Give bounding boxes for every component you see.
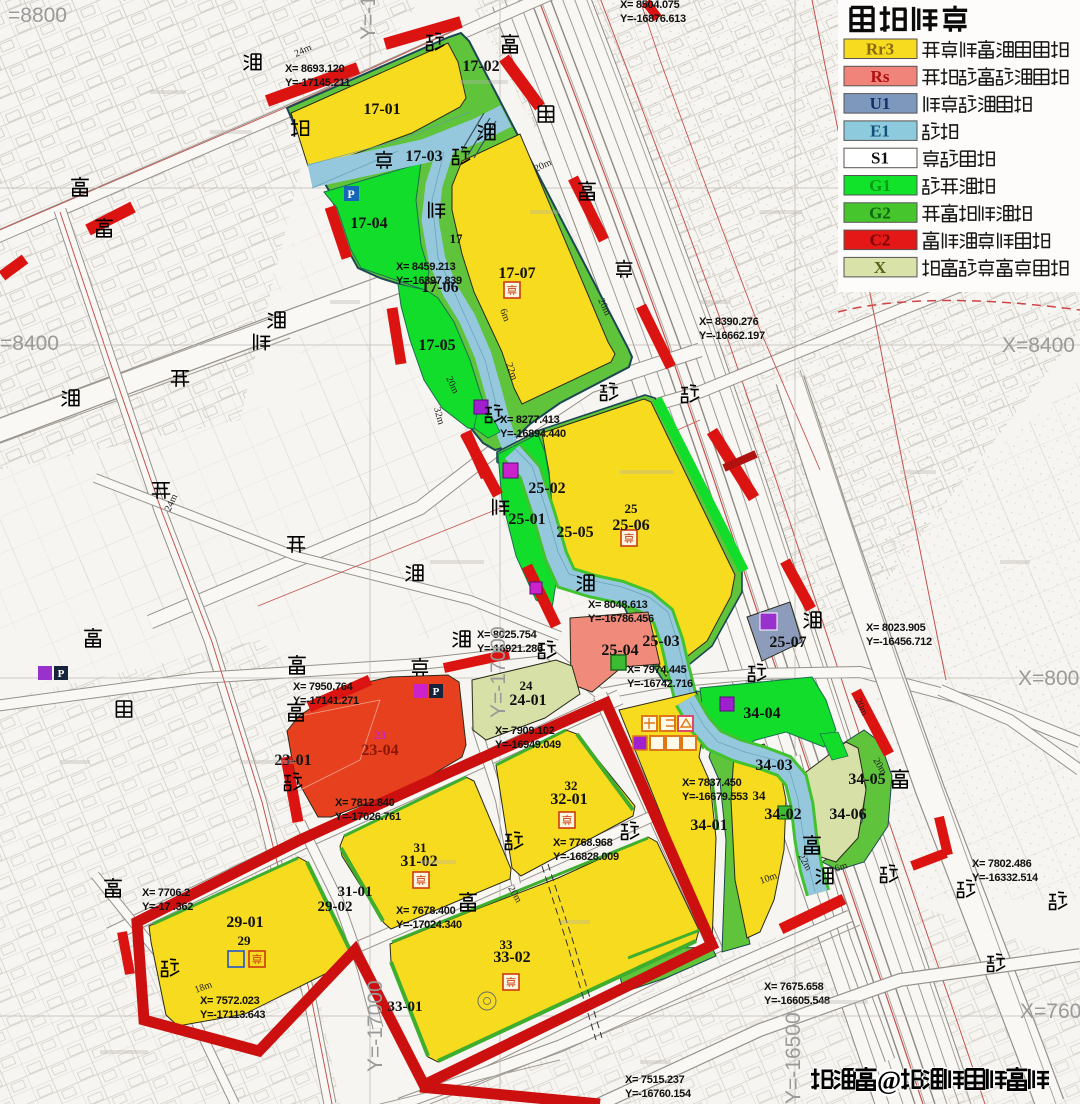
svg-text:X= 7768.968: X= 7768.968 bbox=[553, 837, 613, 849]
svg-text:G2: G2 bbox=[869, 203, 891, 222]
svg-text:G1: G1 bbox=[869, 176, 891, 195]
svg-text:Y=-17000: Y=-17000 bbox=[364, 980, 387, 1072]
svg-text:25-06: 25-06 bbox=[612, 517, 649, 534]
svg-text:X=7600: X=7600 bbox=[1020, 1000, 1080, 1023]
svg-text:24-01: 24-01 bbox=[509, 692, 546, 709]
svg-text:34-02: 34-02 bbox=[764, 806, 801, 823]
svg-text:17-01: 17-01 bbox=[363, 101, 400, 118]
svg-text:17-05: 17-05 bbox=[418, 337, 455, 354]
svg-text:Y=-16760.154: Y=-16760.154 bbox=[625, 1088, 692, 1100]
svg-text:X=8400: X=8400 bbox=[1002, 334, 1075, 357]
svg-text:X= 7802.486: X= 7802.486 bbox=[972, 858, 1032, 870]
svg-text:Y=-16662.197: Y=-16662.197 bbox=[699, 330, 765, 342]
svg-text:X: X bbox=[874, 258, 887, 277]
svg-text:X= 8504.075: X= 8504.075 bbox=[620, 0, 680, 11]
svg-text:X= 7675.658: X= 7675.658 bbox=[764, 981, 824, 993]
svg-text:Y=-17113.643: Y=-17113.643 bbox=[200, 1009, 265, 1021]
svg-text:X= 7909.102: X= 7909.102 bbox=[495, 725, 555, 737]
svg-text:=8400: =8400 bbox=[0, 332, 59, 355]
svg-text:29-01: 29-01 bbox=[226, 914, 263, 931]
svg-text:25-04: 25-04 bbox=[601, 642, 638, 659]
svg-text:34-03: 34-03 bbox=[755, 757, 792, 774]
svg-text:C2: C2 bbox=[870, 231, 891, 250]
svg-text:29: 29 bbox=[238, 933, 252, 948]
svg-text:Rr3: Rr3 bbox=[866, 40, 894, 59]
svg-text:X= 7706.2: X= 7706.2 bbox=[142, 887, 190, 899]
svg-text:17-03: 17-03 bbox=[405, 148, 442, 165]
svg-text:X= 7678.400: X= 7678.400 bbox=[396, 905, 456, 917]
svg-text:X= 7812.840: X= 7812.840 bbox=[335, 797, 395, 809]
svg-text:Y=-16828.009: Y=-16828.009 bbox=[553, 851, 619, 863]
svg-text:X=8000: X=8000 bbox=[1018, 667, 1080, 690]
svg-text:32-01: 32-01 bbox=[550, 791, 587, 808]
svg-text:=8800: =8800 bbox=[8, 4, 67, 27]
svg-text:Y=-16876.613: Y=-16876.613 bbox=[620, 13, 686, 25]
svg-text:23: 23 bbox=[374, 728, 386, 742]
svg-text:U1: U1 bbox=[870, 94, 891, 113]
svg-text:P: P bbox=[347, 187, 354, 201]
svg-text:Rs: Rs bbox=[871, 67, 890, 86]
svg-text:Y=-16949.049: Y=-16949.049 bbox=[495, 739, 561, 751]
svg-text:25-03: 25-03 bbox=[642, 633, 679, 650]
svg-text:34-01: 34-01 bbox=[690, 817, 727, 834]
svg-text:17: 17 bbox=[450, 231, 464, 246]
svg-text:P: P bbox=[433, 686, 440, 698]
svg-text:33-02: 33-02 bbox=[493, 949, 530, 966]
svg-text:Y=-16786.456: Y=-16786.456 bbox=[588, 613, 654, 625]
svg-text:S1: S1 bbox=[871, 149, 889, 168]
svg-text:X= 8459.213: X= 8459.213 bbox=[396, 261, 456, 273]
svg-text:24: 24 bbox=[520, 678, 534, 693]
svg-text:P: P bbox=[58, 668, 65, 680]
svg-text:Y=-17000: Y=-17000 bbox=[357, 0, 380, 40]
svg-text:Y=-16897.839: Y=-16897.839 bbox=[396, 275, 462, 287]
svg-text:23-04: 23-04 bbox=[361, 742, 398, 759]
svg-text:X= 7572.023: X= 7572.023 bbox=[200, 995, 260, 1007]
svg-text:X= 8693.120: X= 8693.120 bbox=[285, 63, 345, 75]
svg-text:Y=-17026.761: Y=-17026.761 bbox=[335, 811, 401, 823]
svg-text:17-04: 17-04 bbox=[350, 215, 387, 232]
svg-text:Y=-16679.553: Y=-16679.553 bbox=[682, 791, 748, 803]
svg-text:Y=-17024.340: Y=-17024.340 bbox=[396, 919, 462, 931]
svg-text:Y=-16894.440: Y=-16894.440 bbox=[500, 428, 566, 440]
svg-text:25-07: 25-07 bbox=[769, 634, 806, 651]
svg-text:X= 7837.450: X= 7837.450 bbox=[682, 777, 742, 789]
svg-text:X= 8023.905: X= 8023.905 bbox=[866, 622, 926, 634]
svg-text:34-04: 34-04 bbox=[743, 705, 780, 722]
svg-text:Y=-16456.712: Y=-16456.712 bbox=[866, 636, 932, 648]
svg-text:29-02: 29-02 bbox=[318, 899, 353, 915]
svg-text:17-02: 17-02 bbox=[462, 58, 499, 75]
svg-text:25-02: 25-02 bbox=[528, 480, 565, 497]
svg-text:X= 8277.413: X= 8277.413 bbox=[500, 414, 560, 426]
svg-text:X= 7974.445: X= 7974.445 bbox=[627, 664, 687, 676]
svg-text:25-05: 25-05 bbox=[556, 524, 593, 541]
svg-text:Y=-17 .362: Y=-17 .362 bbox=[142, 901, 193, 913]
svg-text:E1: E1 bbox=[870, 121, 890, 140]
svg-text:X= 8048.613: X= 8048.613 bbox=[588, 599, 648, 611]
svg-text:25: 25 bbox=[625, 501, 639, 516]
svg-text:Y=-17145.211: Y=-17145.211 bbox=[285, 77, 350, 89]
svg-text:31-01: 31-01 bbox=[338, 884, 373, 900]
svg-text:25-01: 25-01 bbox=[508, 511, 545, 528]
svg-text:34-06: 34-06 bbox=[829, 806, 866, 823]
svg-text:Y=-17141.271: Y=-17141.271 bbox=[293, 695, 359, 707]
svg-text:17-07: 17-07 bbox=[498, 265, 535, 282]
svg-text:X= 8390.276: X= 8390.276 bbox=[699, 316, 759, 328]
svg-text:Y=-16500: Y=-16500 bbox=[782, 1012, 805, 1104]
svg-text:X= 7950.764: X= 7950.764 bbox=[293, 681, 354, 693]
svg-text:Y=-16742.716: Y=-16742.716 bbox=[627, 678, 693, 690]
svg-text:34: 34 bbox=[753, 788, 767, 803]
svg-text:@: @ bbox=[877, 1066, 901, 1095]
svg-text:Y=-17000: Y=-17000 bbox=[487, 626, 510, 718]
svg-text:33-01: 33-01 bbox=[388, 999, 423, 1015]
svg-text:X= 7515.237: X= 7515.237 bbox=[625, 1074, 685, 1086]
svg-text:Y=-16332.514: Y=-16332.514 bbox=[972, 872, 1039, 884]
